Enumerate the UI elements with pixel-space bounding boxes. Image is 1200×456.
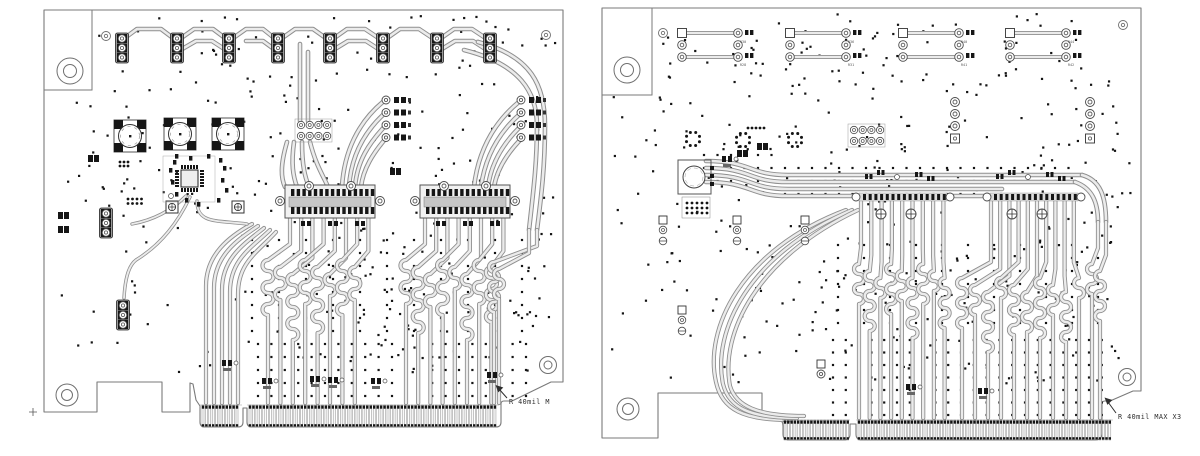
fiducial-mark <box>1119 21 1128 30</box>
mounting-hole <box>1119 369 1136 386</box>
annotation-label-left: R 40mil M <box>509 398 550 406</box>
fiducial-mark <box>659 29 668 38</box>
ref-label: R30 <box>740 40 746 44</box>
mounting-hole <box>57 58 83 84</box>
ref-label: R36 <box>848 40 854 44</box>
pcb-gerber-view: R30R28R36R31R40R41R44R42 R 40mil M R 40m… <box>0 0 1200 456</box>
mounting-hole <box>617 398 639 420</box>
fiducial-mark <box>102 32 111 41</box>
pcb-layout-canvas: R30R28R36R31R40R41R44R42 R 40mil M R 40m… <box>0 0 1200 456</box>
pcb-board-right: R30R28R36R31R40R41R44R42 <box>602 8 1141 440</box>
edge-connector-fingers <box>247 405 499 427</box>
ref-label: R28 <box>740 63 746 67</box>
annotation-arrow-right <box>1108 402 1116 413</box>
mounting-hole <box>56 384 78 406</box>
ref-label: R40 <box>961 40 967 44</box>
mounting-hole <box>540 357 557 374</box>
mounting-hole <box>614 57 640 83</box>
ref-label: R44 <box>1068 40 1074 44</box>
fiducial-mark <box>542 31 551 40</box>
datum-cross <box>29 408 37 416</box>
edge-connector-fingers <box>856 420 1113 440</box>
pcb-board-left <box>29 10 563 427</box>
ref-label: R42 <box>1068 63 1074 67</box>
ref-label: R41 <box>961 63 967 67</box>
annotation-label-right: R 40mil MAX X3 <box>1118 413 1182 421</box>
ref-label: R31 <box>848 63 854 67</box>
